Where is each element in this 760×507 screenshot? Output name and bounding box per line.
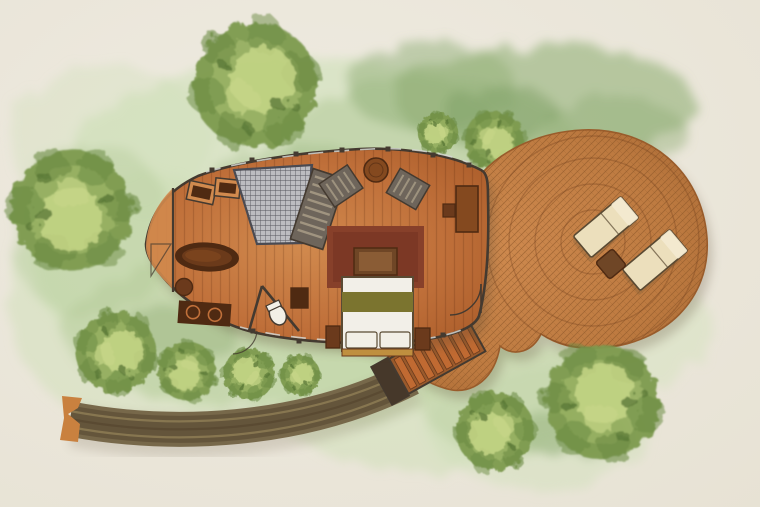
nightstand <box>415 328 430 350</box>
double-bed <box>342 277 413 356</box>
vanity-double-sink <box>178 301 230 326</box>
bath-stool <box>176 279 193 296</box>
bath-cabinet <box>291 288 308 308</box>
sink <box>208 308 222 322</box>
bed-pillow <box>346 332 377 348</box>
ottoman <box>354 248 397 275</box>
bed-foot-board <box>342 349 413 356</box>
sink <box>186 305 200 319</box>
bed-blanket <box>342 292 413 312</box>
nightstand <box>326 326 340 348</box>
console-table <box>456 186 478 232</box>
bed-pillow <box>380 332 410 348</box>
site-plan-illustration <box>0 0 760 507</box>
wall-stool <box>443 204 455 217</box>
site-plan-canvas <box>0 0 760 507</box>
round-side-table <box>364 158 388 182</box>
